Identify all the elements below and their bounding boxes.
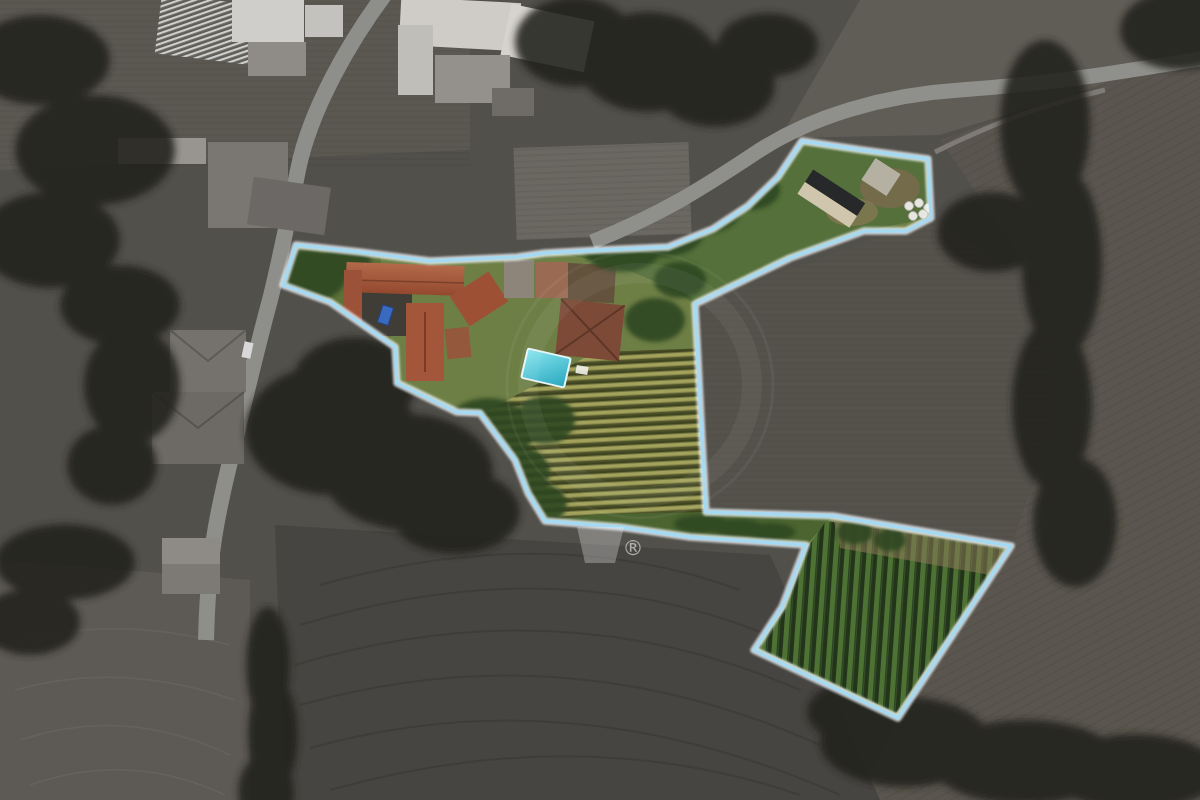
small-shed-roof [444,327,471,359]
field-top-center-furrows [513,142,691,240]
tree-blob [67,425,157,505]
house-bottom-left [162,538,220,594]
aerial-photo: ® [0,0,1200,800]
hedgerow-right-blob [1033,457,1117,587]
tree-blob [390,470,520,554]
tree-blob [874,529,906,551]
gray-roof-small [504,260,534,298]
farmhouse-wing [398,25,433,95]
white-building-2 [305,5,343,37]
screenshot: ® [0,0,1200,800]
bush-blob [625,298,685,342]
hay-bale [909,212,918,221]
terracotta-roof-range [346,262,465,296]
tree-blob [937,192,1047,272]
hay-bale [905,202,914,211]
tree-blob [0,524,135,600]
farmhouse-shed [492,88,534,116]
tree-blob [84,327,180,443]
hay-bale [915,199,924,208]
white-building-1 [232,0,304,42]
tree-blob [15,95,175,205]
house-bottom-left-roof-light [162,538,220,564]
registered-trademark-symbol: ® [623,536,644,560]
tree-blob [718,13,818,77]
gray-building-1 [248,42,306,76]
